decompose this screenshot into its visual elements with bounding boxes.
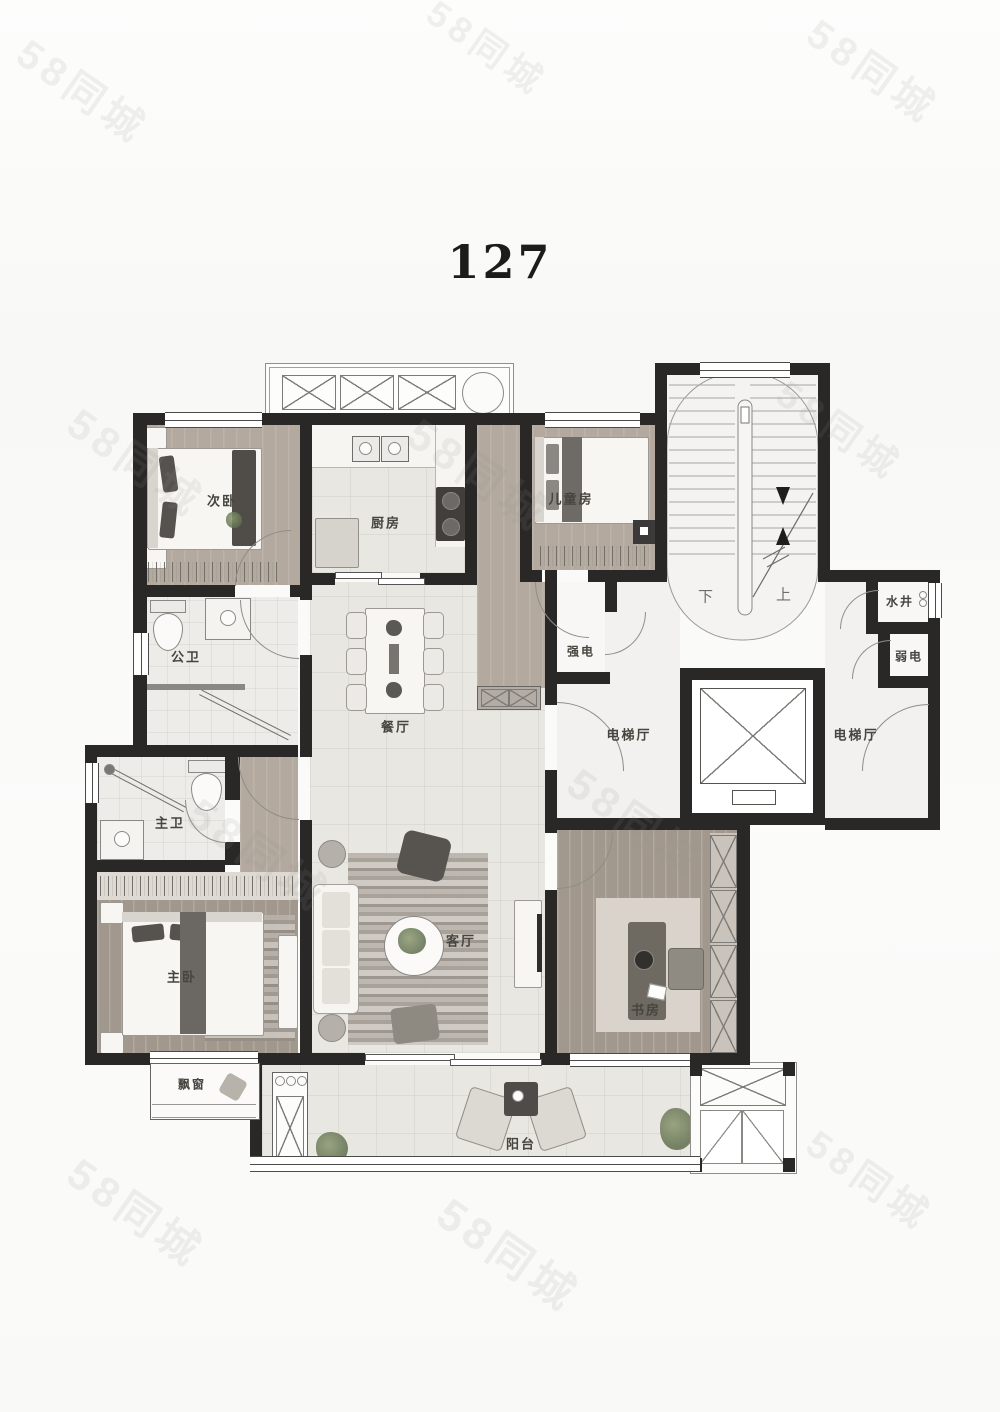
balcony-plant: [660, 1108, 694, 1150]
wall-children-left: [520, 413, 532, 582]
side-pouf: [318, 840, 346, 868]
wall-kitchen-right: [465, 425, 477, 573]
bed-headboard: [148, 448, 158, 548]
dining-chair: [423, 648, 444, 675]
wall-study-right: [737, 830, 750, 1065]
sink-drain: [359, 442, 372, 455]
label-study: 书房: [631, 1000, 661, 1019]
label-secondary-bedroom: 次卧: [207, 491, 237, 510]
bookshelf-x: [710, 835, 737, 888]
kitchen-sliding-door: [378, 578, 425, 585]
bed-runner: [562, 437, 582, 522]
dining-chair: [346, 684, 367, 711]
label-weak-electric: 弱电: [895, 648, 923, 665]
equipment-circle: [462, 372, 504, 414]
label-children-room: 儿童房: [548, 489, 593, 508]
dining-chair: [423, 684, 444, 711]
wall-post: [783, 1062, 795, 1076]
sink-drain: [388, 442, 401, 455]
laundry-knob: [297, 1076, 307, 1086]
wall-masterbath-top: [85, 745, 298, 757]
stove-burner: [442, 518, 460, 536]
shoe-cabinet-x: [509, 689, 537, 707]
wall-children-bottom: [532, 570, 542, 582]
desk-lamp: [634, 950, 654, 970]
wall-bottom: [690, 1053, 750, 1065]
refrigerator: [315, 518, 359, 568]
equipment-x: [282, 375, 336, 410]
toilet-tank: [188, 760, 226, 773]
equipment-x: [340, 375, 394, 410]
closet-hangers: [540, 546, 650, 566]
watermark-text: 58同城: [7, 23, 162, 156]
ac-louver: [742, 1110, 784, 1164]
wall-bottom: [258, 1053, 365, 1065]
tv-cabinet: [278, 935, 298, 1029]
label-kitchen: 厨房: [371, 513, 401, 532]
wall-strongelec-right: [605, 582, 617, 612]
hallway-floor-upper: [477, 425, 520, 582]
kitchen-sliding-door: [335, 572, 382, 579]
balcony-railing: [250, 1156, 700, 1172]
pillow: [131, 923, 164, 942]
sofa-cushion: [322, 892, 350, 928]
plant-decor: [226, 512, 242, 528]
sofa-cushion: [322, 968, 350, 1004]
bookshelf-x: [710, 890, 737, 943]
table-plant: [386, 620, 402, 636]
label-master-bedroom: 主卧: [167, 967, 197, 986]
unit-area-title: 127: [447, 235, 552, 289]
wall-right-top: [823, 570, 940, 582]
nightstand-lamp: [640, 527, 648, 535]
watermark-text: 58同城: [797, 3, 952, 136]
wall-bottom: [85, 1053, 152, 1065]
sink-basin: [220, 610, 236, 626]
wall-hall-bottom-left: [545, 818, 680, 830]
ac-condenser: [700, 1068, 786, 1106]
label-bay-window: 飘窗: [178, 1076, 206, 1093]
desk-chair: [668, 948, 704, 990]
shoe-cabinet-x: [481, 689, 509, 707]
window: [700, 362, 790, 378]
label-living-room: 客厅: [446, 931, 476, 950]
window: [85, 763, 99, 803]
water-meter-icon: [919, 599, 927, 607]
bed-headboard: [535, 437, 544, 522]
laundry-x: [276, 1096, 304, 1160]
nightstand: [100, 902, 124, 924]
label-elevator-hall-left: 电梯厅: [606, 725, 651, 744]
toilet-tank: [150, 600, 186, 613]
ac-louver: [700, 1110, 742, 1164]
label-strong-electric: 强电: [567, 643, 595, 660]
watermark-text: 58同城: [56, 1141, 218, 1280]
stairwell-drawing: [655, 365, 830, 650]
dining-chair: [423, 612, 444, 639]
wall-bath-right: [300, 585, 312, 600]
wall-apartment-right: [545, 770, 557, 833]
label-dining-room: 餐厅: [381, 717, 411, 736]
wall-living-study: [545, 890, 557, 1053]
bay-window-sill: [152, 1104, 256, 1118]
label-master-bathroom: 主卫: [155, 813, 185, 832]
elevator-car: [700, 688, 806, 784]
balcony-table-cup: [512, 1090, 524, 1102]
elevator-door: [732, 790, 776, 805]
tv-screen: [537, 914, 542, 972]
wall-bottom: [540, 1053, 570, 1065]
window: [133, 633, 149, 675]
floor-plan-page: 127: [0, 0, 1000, 1412]
coffee-table-plant: [398, 928, 426, 954]
label-stair-down: 下: [698, 586, 714, 607]
label-stair-up: 上: [776, 584, 792, 605]
label-balcony: 阳台: [506, 1134, 536, 1153]
window: [928, 583, 942, 618]
window: [570, 1053, 690, 1067]
dining-chair: [346, 612, 367, 639]
nightstand: [100, 1032, 124, 1054]
wall-bath-right: [300, 655, 312, 757]
bookshelf-x: [710, 945, 737, 998]
balcony-sliding-door: [365, 1054, 455, 1061]
wall-post: [783, 1158, 795, 1172]
dining-chair: [346, 648, 367, 675]
watermark-text: 58同城: [417, 0, 558, 106]
wall-bedroom-bottom: [133, 585, 235, 597]
pillow: [546, 444, 559, 474]
bookshelf-x: [710, 1000, 737, 1053]
wall-hall-bottom-right: [825, 818, 940, 830]
entry-floor: [477, 582, 545, 688]
sofa-cushion: [322, 930, 350, 966]
wall-stair-right: [818, 363, 830, 582]
watermark-text: 58同城: [426, 1180, 595, 1325]
table-plant: [386, 682, 402, 698]
laundry-knob: [286, 1076, 296, 1086]
label-elevator-hall-right: 电梯厅: [833, 725, 878, 744]
sink-basin: [114, 831, 130, 847]
wall-kitchen-bottom: [420, 573, 477, 585]
window: [165, 412, 262, 428]
shower-head: [104, 764, 115, 775]
wall-children-bottom: [588, 570, 667, 582]
watermark-text: 58同城: [797, 1114, 945, 1241]
table-runner: [389, 644, 399, 674]
wall-kitchen-bottom: [312, 573, 335, 585]
equipment-x: [398, 375, 456, 410]
wall-bedroom-kitchen: [300, 413, 312, 585]
wall-masterbath-right: [225, 842, 240, 865]
wall-stair-left: [655, 363, 667, 582]
balcony-sliding-door: [450, 1059, 542, 1066]
wall-masterbath-bottom: [97, 860, 225, 872]
window: [545, 412, 640, 428]
wardrobe-hangers: [100, 876, 295, 896]
wall-strongelec-bottom: [545, 672, 610, 684]
label-water-shaft: 水井: [886, 593, 914, 610]
laundry-knob: [275, 1076, 285, 1086]
stove-burner: [442, 492, 460, 510]
label-guest-bathroom: 公卫: [171, 647, 201, 666]
water-meter-icon: [919, 591, 927, 599]
shower-partition: [145, 684, 245, 690]
ottoman: [390, 1003, 440, 1044]
side-pouf: [318, 1014, 346, 1042]
wall-suite-right: [300, 820, 312, 1053]
